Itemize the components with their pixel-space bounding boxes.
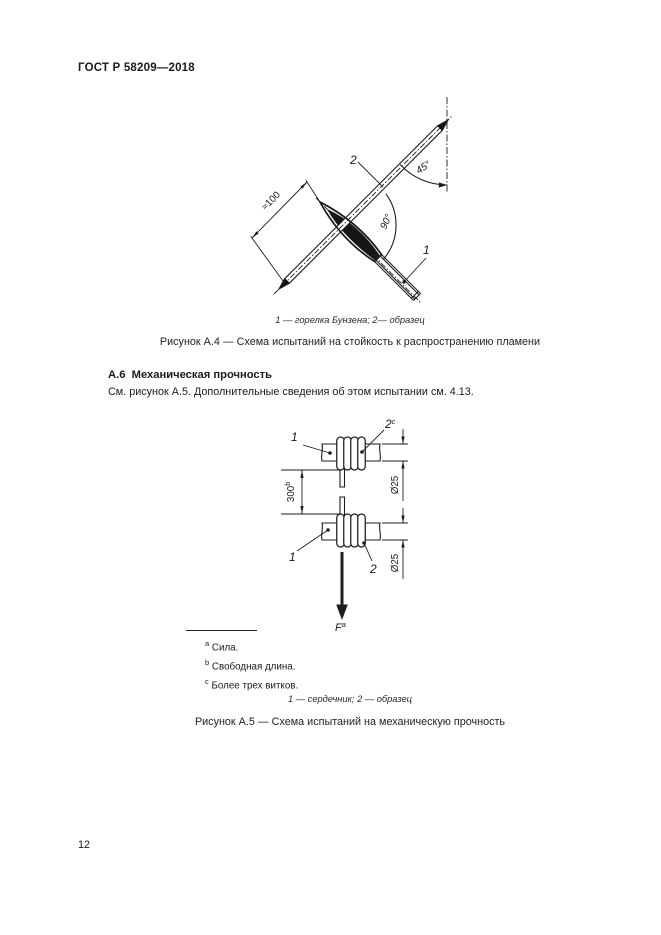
- force-arrow: [336, 552, 348, 620]
- footnote-b: b Свободная длина.: [186, 656, 486, 675]
- callout-core-bottom: 1: [289, 550, 296, 564]
- angle-90-label: 90°: [379, 213, 395, 231]
- dim-dia-lower-label: Ø25: [390, 553, 401, 572]
- bunsen-burner: [375, 255, 421, 301]
- section-a6-body: См. рисунок А.5. Дополнительные сведения…: [108, 386, 474, 398]
- footnote-c: c Более трех витков.: [186, 675, 486, 694]
- document-page: ГОСТ Р 58209—2018: [0, 0, 661, 935]
- dimension-100: [251, 180, 320, 281]
- figure-a5-diagram: 1 2c 1 2 300b Ø25 Ø25 Fa: [275, 415, 415, 643]
- callout-burner: 1: [423, 243, 430, 257]
- figure-a4-diagram: 2 1 45° 90° ≈100: [240, 92, 461, 308]
- footnote-a: a Сила.: [186, 637, 486, 656]
- page-number: 12: [78, 839, 90, 851]
- upper-coil: [337, 437, 366, 470]
- lower-coil: [337, 514, 366, 547]
- callout-core-top: 1: [291, 430, 298, 444]
- document-header: ГОСТ Р 58209—2018: [78, 62, 195, 74]
- callout-sample: 2: [349, 153, 357, 167]
- angle-45-label: 45°: [414, 159, 433, 176]
- figure-a4-caption: Рисунок А.4 — Схема испытаний на стойкос…: [85, 336, 615, 348]
- footnote-separator: [186, 630, 257, 631]
- figure-a5-legend: 1 — сердечник; 2 — образец: [85, 694, 615, 704]
- figure-a5-footnotes: a Сила. b Свободная длина. c Более трех …: [186, 630, 486, 694]
- flame: [320, 202, 382, 262]
- dim-300-label: 300b: [285, 482, 297, 502]
- callout-sample-top: 2c: [384, 417, 396, 431]
- figure-a4-legend: 1 — горелка Бунзена; 2— образец: [85, 315, 615, 325]
- callout-sample-bottom: 2: [369, 562, 377, 576]
- dim-dia-upper-label: Ø25: [390, 475, 401, 494]
- sample-rod: [274, 116, 452, 294]
- figure-a5-caption: Рисунок А.5 — Схема испытаний на механич…: [85, 716, 615, 728]
- section-a6-heading: А.6 Механическая прочность: [108, 369, 272, 381]
